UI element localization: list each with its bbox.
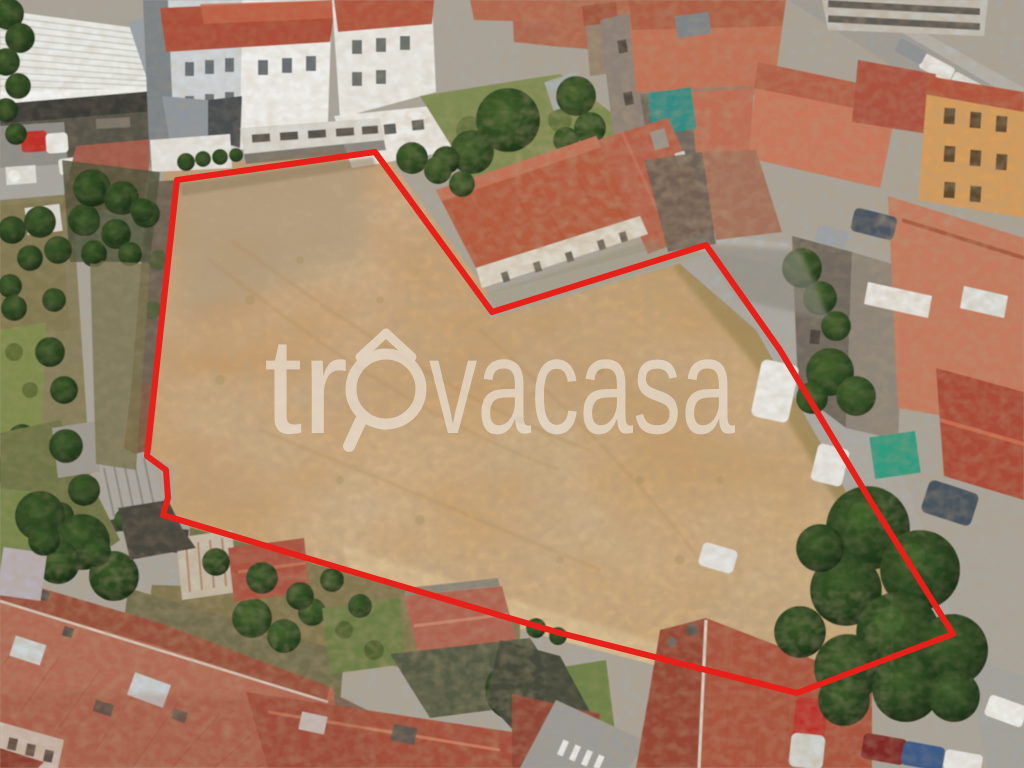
svg-text:vacasa: vacasa xyxy=(429,310,736,463)
svg-text:tr: tr xyxy=(264,310,348,463)
